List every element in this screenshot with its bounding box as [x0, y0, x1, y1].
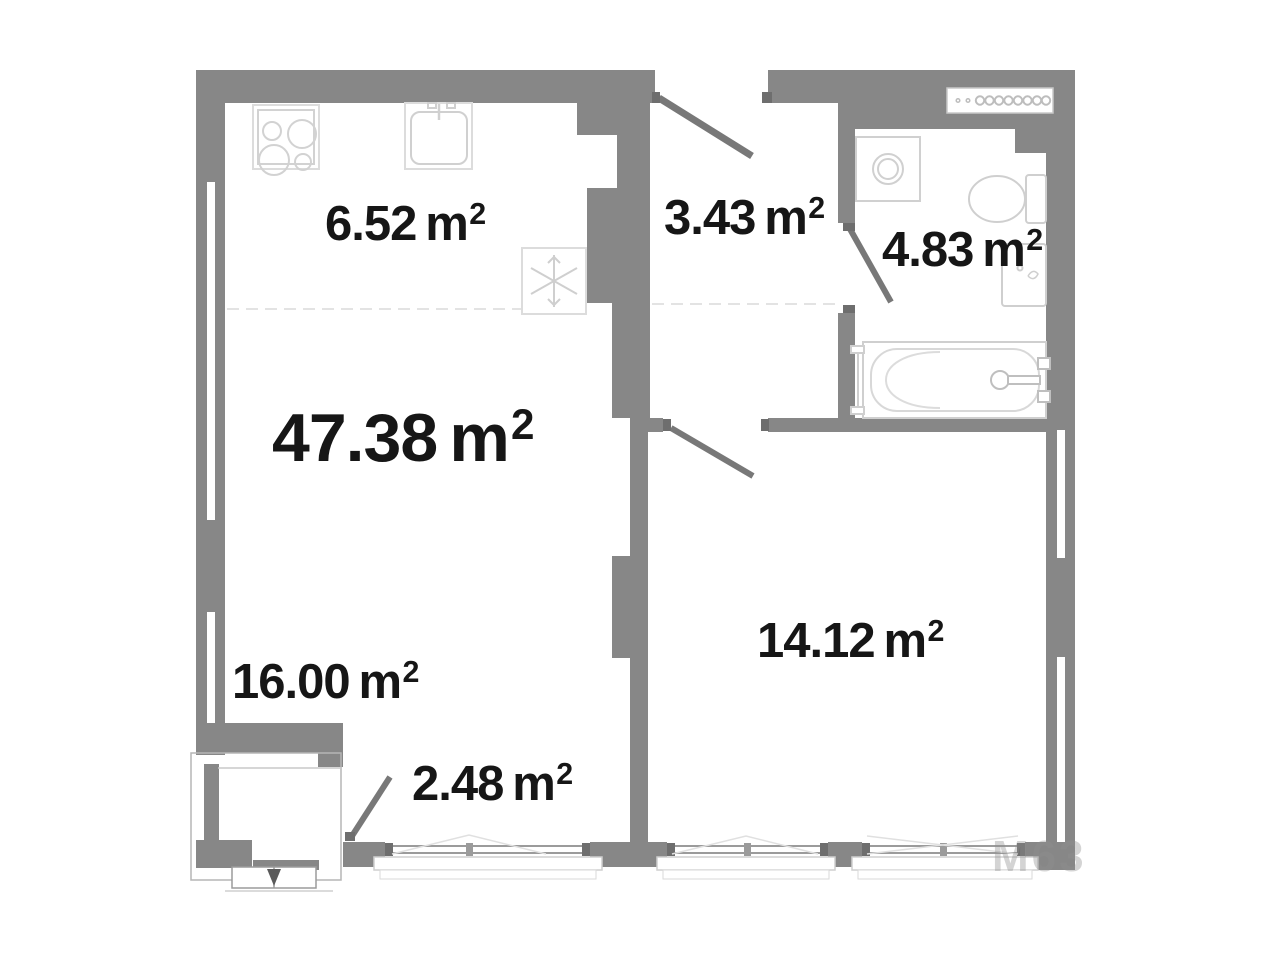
wall	[838, 313, 855, 418]
floor-plan-drawing	[0, 0, 1280, 960]
total-area-value: 47.38	[272, 400, 437, 476]
window-slot	[207, 612, 215, 723]
stove-symbol	[253, 105, 319, 175]
unit: m	[358, 655, 401, 709]
wall-pillar	[204, 764, 219, 840]
unit: m	[512, 757, 555, 811]
hallway-area-label: 3.43m2	[664, 193, 824, 243]
wall-notch	[580, 135, 617, 188]
window	[657, 836, 835, 879]
kitchen-sink-symbol	[405, 103, 472, 169]
bedroom-door-swing	[671, 428, 753, 476]
bathroom-area-value: 4.83	[882, 223, 973, 277]
unit: m	[764, 191, 807, 245]
balcony-area-label: 2.48m2	[412, 759, 572, 809]
bedroom-area-value: 14.12	[757, 614, 875, 668]
unit-superscript: 2	[469, 197, 485, 231]
wall	[196, 723, 343, 753]
wall	[612, 303, 650, 418]
hallway-area-value: 3.43	[664, 191, 755, 245]
unit: m	[883, 614, 926, 668]
unit: m	[425, 197, 468, 251]
wall	[768, 418, 1046, 432]
wall	[617, 135, 650, 188]
wall	[577, 103, 650, 135]
watermark: М63	[992, 832, 1087, 882]
unit: m	[449, 400, 508, 476]
ventilation-grille	[947, 88, 1053, 113]
balcony-door-swing	[352, 777, 390, 836]
fridge-symbol	[522, 248, 586, 314]
bathroom-area-label: 4.83m2	[882, 225, 1042, 275]
unit-superscript: 2	[808, 191, 824, 225]
entrance-door-swing	[659, 98, 752, 156]
unit-superscript: 2	[511, 401, 533, 448]
window-slot	[207, 182, 215, 520]
wall	[630, 418, 648, 842]
living-room-area-label: 16.00m2	[232, 657, 418, 707]
unit-superscript: 2	[556, 757, 572, 791]
washing-machine-symbol	[856, 137, 920, 201]
bedroom-area-label: 14.12m2	[757, 616, 943, 666]
unit: m	[982, 223, 1025, 277]
wall	[612, 556, 630, 658]
windows	[374, 835, 1038, 879]
kitchen-area-label: 6.52m2	[325, 199, 485, 249]
total-area-label: 47.38m2	[272, 404, 533, 472]
window-slot	[1057, 430, 1065, 558]
wall	[1015, 129, 1046, 153]
kitchen-area-value: 6.52	[325, 197, 416, 251]
window-slot	[1057, 657, 1065, 842]
toilet-symbol	[969, 175, 1046, 223]
wall	[838, 129, 855, 223]
unit-superscript: 2	[403, 655, 419, 689]
floor-plan-page: 47.38m2 6.52m2 3.43m2 4.83m2 16.00m2 2.4…	[0, 0, 1280, 960]
balcony-area-value: 2.48	[412, 757, 503, 811]
wall	[196, 840, 252, 868]
wall	[648, 418, 663, 432]
wall	[196, 70, 655, 103]
wall	[318, 753, 343, 767]
living-room-area-value: 16.00	[232, 655, 350, 709]
bathtub-symbol	[863, 342, 1050, 418]
wall	[587, 188, 650, 303]
window	[374, 835, 602, 879]
unit-superscript: 2	[1026, 223, 1042, 257]
unit-superscript: 2	[928, 614, 944, 648]
